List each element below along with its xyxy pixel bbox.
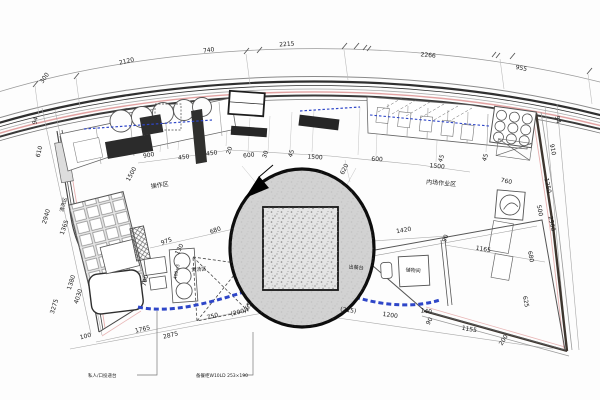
dimension-labels-item: 100 [79, 332, 92, 342]
dimension-labels-item: 140 [420, 307, 432, 316]
dimension-labels-item: 680 [209, 225, 222, 235]
pass-box [228, 91, 265, 116]
dimension-labels-item: 30 [261, 150, 270, 160]
dimension-labels-item: 45 [287, 149, 296, 159]
callout-labels-item: 私人/口投递台 [88, 372, 117, 379]
dimension-labels-item: 750 [206, 312, 219, 322]
wall-fixtures-right [489, 220, 514, 280]
dimension-labels-item: 955 [515, 64, 528, 73]
service-line-heavy-right [355, 297, 440, 305]
dimension-labels-item: 740 [203, 46, 216, 55]
callout-labels-item: 备餐柜W10LD 253×190 [196, 372, 248, 379]
dimension-labels-item: 680 [526, 250, 535, 263]
dimension-labels-item: 45 [437, 154, 446, 164]
area-labels-item: 清洗区 [58, 197, 68, 213]
dimension-labels-item: 94 [31, 116, 39, 125]
dimension-labels-item: 2940 [41, 208, 52, 225]
dimension-labels-item: 20 [225, 146, 234, 156]
dimension-labels-item: 2875 [162, 330, 179, 340]
dimension-labels-item: 1365 [59, 219, 71, 236]
area-labels-item: 内场作业区 [426, 178, 457, 189]
prep-table-rounded [88, 269, 144, 315]
area-labels-item: 出餐台 [348, 263, 364, 271]
dimension-labels-item: 1165 [475, 245, 491, 254]
dimension-labels-item: 2266 [420, 51, 436, 60]
dimension-labels-item: 620 [339, 162, 350, 176]
callout-labels: 私人/口投递台备餐柜W10LD 253×190 [88, 372, 248, 379]
dimension-labels-item: 450 [206, 149, 218, 158]
right-wall-pink-line [533, 116, 564, 349]
floor-plan-canvas: 3002120740221522669559461029401365138040… [0, 0, 600, 400]
dimension-labels-item: 45 [481, 153, 490, 163]
room-divider-wall [441, 239, 452, 306]
dimension-labels-item: 600 [243, 151, 255, 159]
area-labels-item: 煲汤区 [191, 265, 206, 273]
range-bar-right [298, 115, 339, 131]
small-fixture [381, 262, 393, 279]
dimension-labels-item: 900 [142, 151, 155, 160]
dimension-labels-item: 1500 [125, 166, 138, 183]
callout-leaders [137, 311, 253, 375]
dimension-labels-item: 2215 [279, 40, 295, 48]
dimension-labels-item: 625 [521, 295, 530, 308]
dimension-labels-item: 600 [371, 156, 383, 164]
floor-drain [495, 190, 525, 220]
dimension-labels-item: 1420 [396, 226, 412, 235]
dimension-labels-item: 1765 [134, 324, 151, 334]
range-bar-mid [231, 126, 268, 137]
dimension-labels-item: 450 [178, 153, 190, 162]
dimension-labels-item: 1380 [66, 274, 77, 291]
dimension-labels-item: 760 [500, 177, 513, 186]
dimension-labels-item: 1155 [461, 325, 477, 335]
dimension-labels-item: 1200 [382, 311, 398, 320]
steamer-basket-grid [490, 106, 537, 147]
kitchen-floor-plan: 3002120740221522669559461029401365138040… [0, 0, 600, 400]
dimension-labels-item: 700 [141, 274, 151, 287]
dimension-labels-item: 90 [425, 316, 435, 326]
dimension-labels-item: 975 [160, 236, 173, 246]
dimension-labels-item: 610 [35, 145, 45, 158]
dimension-labels-item: 2120 [118, 56, 135, 66]
storage-chain [358, 236, 545, 262]
area-labels-item: 储物间 [405, 266, 421, 274]
dimension-labels-item: 3275 [49, 298, 60, 315]
dimension-labels-item: 1500 [307, 154, 323, 162]
dimension-labels-item: 500 [535, 204, 544, 217]
area-labels-item: 操作区 [150, 180, 169, 190]
